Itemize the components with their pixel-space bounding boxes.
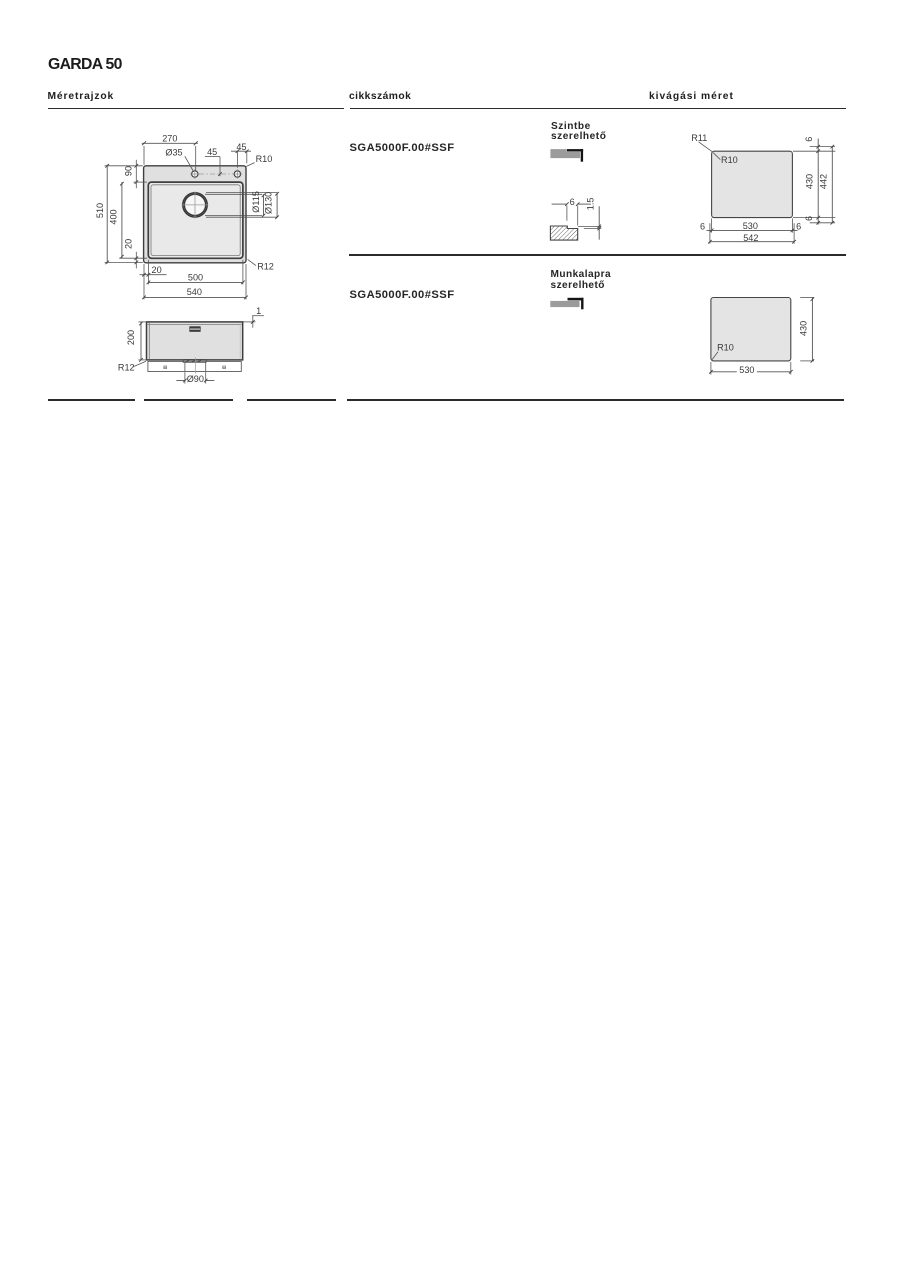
svg-text:R11: R11 [691,133,707,143]
svg-text:530: 530 [743,221,758,231]
svg-text:R10: R10 [721,155,738,165]
svg-text:Ø115: Ø115 [251,191,261,213]
svg-text:530: 530 [739,365,754,375]
svg-text:500: 500 [188,272,203,282]
svg-text:1: 1 [256,306,261,316]
svg-text:R12: R12 [257,262,274,272]
svg-text:20: 20 [123,239,133,249]
svg-text:20: 20 [152,265,162,275]
svg-text:442: 442 [819,174,829,189]
svg-text:R10: R10 [256,154,273,164]
svg-text:6: 6 [804,216,814,221]
svg-text:430: 430 [804,174,814,189]
svg-text:200: 200 [126,330,136,345]
svg-text:400: 400 [109,209,119,224]
svg-text:Ø130: Ø130 [264,192,274,214]
svg-text:R10: R10 [717,342,734,352]
svg-text:45: 45 [207,147,217,157]
svg-text:510: 510 [95,203,105,218]
svg-text:430: 430 [798,321,808,336]
svg-text:1.5: 1.5 [586,198,596,211]
svg-text:540: 540 [187,287,202,297]
svg-text:6: 6 [700,222,705,232]
svg-text:270: 270 [162,134,177,144]
svg-text:6: 6 [570,197,575,207]
svg-text:Ø90: Ø90 [187,374,204,384]
svg-text:90: 90 [123,166,133,176]
svg-text:6: 6 [804,137,814,142]
svg-text:Ø35: Ø35 [165,148,182,158]
svg-text:R12: R12 [118,363,135,373]
